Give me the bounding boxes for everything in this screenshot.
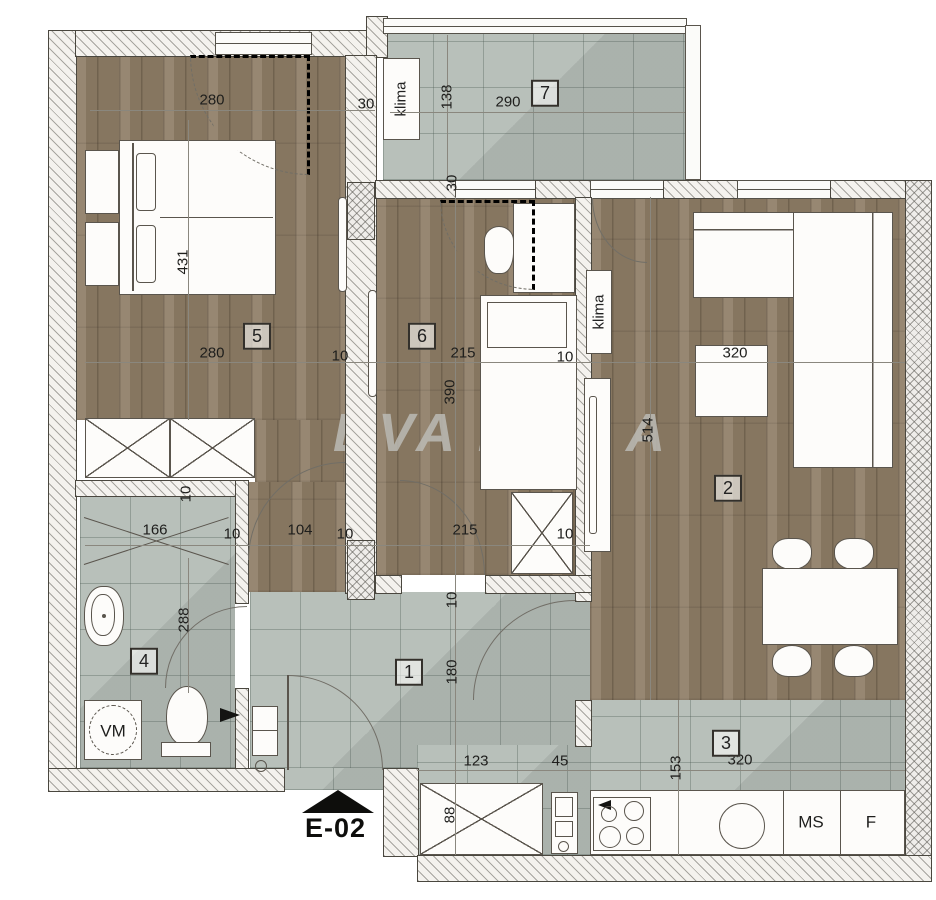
dining-chair <box>772 645 812 677</box>
window-room6-top <box>455 180 537 199</box>
wall-block-bottom <box>347 540 375 600</box>
pillow <box>487 302 567 348</box>
room-number-6: 6 <box>408 323 436 350</box>
entrance-marker-label: E-02 <box>305 813 366 844</box>
room-number-4: 4 <box>130 648 158 675</box>
pillow <box>136 153 156 211</box>
wall-entrance-stub <box>383 768 419 857</box>
radiator <box>368 290 377 397</box>
counter-divider <box>840 790 841 855</box>
pillow <box>136 225 156 283</box>
dimension-line <box>85 362 905 363</box>
dining-chair <box>834 645 874 677</box>
wardrobe-closet <box>170 418 255 478</box>
hall-cabinet <box>252 706 278 756</box>
dimension-label: 320 <box>722 346 747 361</box>
wall-block-top <box>347 182 375 240</box>
dining-chair <box>772 538 812 570</box>
wall-bathroom-right <box>235 688 249 770</box>
dimension-label: 215 <box>450 346 475 361</box>
dimension-label: 215 <box>452 523 477 538</box>
dimension-label: 88 <box>443 807 458 824</box>
dimension-label: 10 <box>179 486 194 503</box>
mattress-split-line <box>160 217 273 218</box>
dimension-label: 10 <box>337 527 354 542</box>
wall-left-outer <box>48 30 77 792</box>
entrance-gap-floor <box>283 768 383 790</box>
nightstand <box>85 150 119 214</box>
dimension-label: 45 <box>552 754 569 769</box>
wall-bottom-left <box>48 768 285 792</box>
headboard-line <box>132 143 134 291</box>
entry-wardrobe <box>420 783 543 855</box>
dining-table <box>762 568 898 645</box>
dimension-label: 10 <box>224 527 241 542</box>
counter-divider <box>783 790 784 855</box>
entrance-door-leaf <box>287 675 289 770</box>
radiator <box>338 197 347 292</box>
room-number-3: 3 <box>712 730 740 757</box>
dimension-label: 30 <box>445 175 460 192</box>
balcony-front-window <box>383 18 687 34</box>
dimension-line <box>90 110 375 111</box>
dining-chair <box>834 538 874 570</box>
stove-burner <box>601 806 617 822</box>
nightstand <box>85 222 119 286</box>
dimension-line <box>650 197 651 700</box>
dimension-label: 30 <box>358 97 375 112</box>
wall-balcony-right <box>685 25 701 180</box>
toilet-bowl <box>166 686 208 746</box>
door-direction-arrow <box>220 708 240 722</box>
wardrobe-closet <box>85 418 170 478</box>
dimension-label: 10 <box>332 349 349 364</box>
cabinet-knob <box>558 841 569 852</box>
wall-bottom-kitchen <box>417 855 932 882</box>
dimension-label: 290 <box>495 95 520 110</box>
dimension-label: 153 <box>669 755 684 780</box>
sink-drain <box>102 614 106 618</box>
wall-mid-segment <box>830 180 907 199</box>
ac-unit-living-label: klima <box>591 294 608 329</box>
double-bed <box>119 140 276 295</box>
window-room5-top <box>215 32 312 55</box>
dimension-line <box>85 545 590 546</box>
dimension-label: 104 <box>287 523 312 538</box>
dimension-label: 10 <box>445 592 460 609</box>
hall-cabinet-knob <box>255 760 267 772</box>
dimension-label: 288 <box>177 607 192 632</box>
dimension-label: 10 <box>557 527 574 542</box>
dimension-label: 280 <box>199 93 224 108</box>
wall-right-outer <box>905 180 932 882</box>
floor-plan: DVA ZV A klima kl <box>0 0 936 900</box>
dimension-label: 10 <box>557 350 574 365</box>
kitchen-cabinet <box>551 792 578 854</box>
kitchen-sink <box>719 803 765 849</box>
dimension-label: 123 <box>463 754 488 769</box>
sofa-section <box>793 212 893 468</box>
stove-burner <box>624 801 644 821</box>
dishwasher-label: MS <box>798 814 824 831</box>
tv-stand <box>584 378 611 552</box>
tv <box>589 396 597 534</box>
dimension-label: 280 <box>199 346 224 361</box>
window-room2-left <box>590 180 665 199</box>
fridge-label: F <box>866 814 876 831</box>
dimension-line <box>417 770 905 771</box>
wall-hall-living <box>575 592 592 602</box>
bathroom-sink <box>84 586 124 646</box>
dimension-line <box>390 112 685 113</box>
stove-burner <box>626 827 644 845</box>
toilet-cistern <box>161 742 211 757</box>
wall-mid-segment <box>663 180 739 199</box>
window-room2-right <box>737 180 832 199</box>
sofa-section <box>693 212 795 298</box>
single-bed <box>480 295 577 490</box>
dimension-label: 390 <box>443 379 458 404</box>
wall-hall-living <box>575 700 592 747</box>
wall-room6-bottom <box>375 575 402 594</box>
cabinet-drawer <box>555 797 573 817</box>
wall-bathroom-top <box>75 480 237 497</box>
dimension-label: 431 <box>176 249 191 274</box>
room-number-2: 2 <box>714 475 742 502</box>
dimension-label: 138 <box>440 84 455 109</box>
entrance-marker-icon <box>302 790 374 813</box>
stove-burner <box>599 826 621 848</box>
dimension-label: 180 <box>445 659 460 684</box>
washing-machine-label: VM <box>100 723 126 740</box>
cabinet-drawer <box>555 821 573 837</box>
room-number-1: 1 <box>395 659 423 686</box>
room-number-5: 5 <box>243 323 271 350</box>
room-number-7: 7 <box>531 80 559 107</box>
dimension-label: 166 <box>142 523 167 538</box>
dimension-label: 514 <box>641 417 656 442</box>
